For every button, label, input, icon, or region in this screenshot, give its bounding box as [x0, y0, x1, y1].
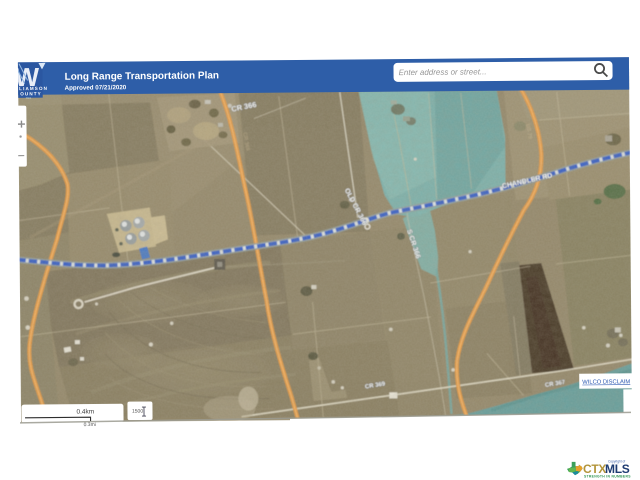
- svg-text:0.4km: 0.4km: [76, 408, 94, 415]
- svg-text:TEX: TEX: [26, 96, 32, 100]
- svg-text:0.3mi: 0.3mi: [84, 422, 96, 428]
- svg-text:1500: 1500: [132, 409, 143, 415]
- svg-text:STRENGTH IN NUMBERS: STRENGTH IN NUMBERS: [584, 475, 631, 479]
- svg-text:Approved 07/21/2020: Approved 07/21/2020: [65, 84, 127, 92]
- svg-text:WILCO DISCLAIM: WILCO DISCLAIM: [582, 379, 630, 385]
- svg-text:Enter address or street...: Enter address or street...: [399, 67, 487, 77]
- svg-text:Copyright of: Copyright of: [608, 460, 625, 464]
- svg-text:Long Range Transportation Plan: Long Range Transportation Plan: [65, 70, 220, 82]
